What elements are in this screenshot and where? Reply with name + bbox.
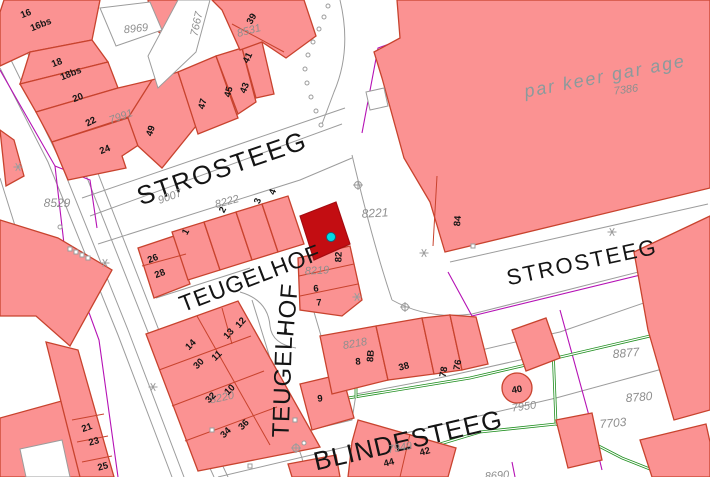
cadastral-map-viewport[interactable]: STROSTEEGSTROSTEEGTEUGELHOFTEUGEL-HOFBLI…	[0, 0, 710, 477]
building-parcel[interactable]	[640, 424, 710, 477]
house-number-label: 78	[438, 366, 451, 378]
street-name-label: STROSTEEG	[504, 234, 660, 290]
parcel-id-label: 8529	[44, 196, 71, 210]
house-number-label: 82	[333, 252, 344, 263]
survey-symbol-dot	[309, 95, 313, 99]
survey-symbol-square	[68, 247, 72, 251]
survey-symbol-square	[471, 244, 475, 248]
street-name-label: HOF	[272, 282, 304, 338]
selected-parcel-marker	[327, 233, 336, 242]
house-number-label: 40	[511, 384, 523, 397]
house-number-label: 7	[316, 297, 322, 308]
house-number-label: 8B	[365, 349, 377, 362]
survey-symbol-dot	[322, 15, 326, 19]
street-name-label: TEUGEL-	[268, 326, 299, 438]
survey-symbol-dot	[311, 40, 315, 44]
boundary-line-purple	[512, 462, 515, 477]
layer-labels: STROSTEEGSTROSTEEGTEUGELHOFTEUGEL-HOFBLI…	[19, 7, 687, 477]
survey-symbol-asterisk	[149, 383, 158, 391]
survey-symbol-dot	[326, 4, 330, 8]
survey-symbol-asterisk	[420, 249, 429, 257]
house-number-label: 9	[317, 393, 323, 404]
house-number-label: 8	[355, 356, 361, 367]
house-number-label: 3	[252, 197, 264, 206]
road-edge-line	[352, 155, 392, 300]
building-parcel[interactable]	[374, 0, 710, 252]
house-number-label: 84	[452, 215, 464, 227]
survey-symbol-dot	[317, 27, 321, 31]
building-parcel[interactable]	[0, 130, 24, 186]
house-number-label: 76	[452, 359, 465, 371]
survey-symbol-circled-plus	[400, 302, 410, 312]
survey-symbol-square	[210, 428, 214, 432]
parcel-id-label: 7950	[511, 399, 538, 414]
cadastral-map[interactable]: STROSTEEGSTROSTEEGTEUGELHOFTEUGEL-HOFBLI…	[0, 0, 710, 477]
survey-symbol-dot	[314, 109, 318, 113]
building-parcel[interactable]	[0, 220, 112, 346]
survey-symbol-dot	[58, 225, 62, 229]
survey-symbol-dot	[302, 441, 306, 445]
house-number-label: 6	[313, 283, 319, 294]
survey-symbol-dot	[306, 53, 310, 57]
survey-symbol-square	[80, 253, 84, 257]
survey-symbol-square	[86, 256, 90, 260]
parcel-id-label: 8219	[304, 264, 329, 277]
survey-symbol-square	[248, 464, 252, 468]
survey-symbol-square	[74, 250, 78, 254]
parcel-id-label: 8221	[361, 205, 388, 220]
boundary-line-purple	[448, 272, 472, 316]
parcel-id-label: 7703	[599, 415, 627, 431]
survey-symbol-circled-plus	[353, 180, 363, 190]
building-parcel[interactable]	[556, 413, 602, 468]
parcel-id-label: 8690	[484, 469, 510, 477]
parcel-id-label: 8969	[123, 22, 149, 36]
survey-symbol-dot	[319, 123, 323, 127]
parcel-id-label: 8780	[625, 389, 653, 405]
parcel-id-label: 8877	[612, 345, 641, 361]
survey-symbol-dot	[303, 67, 307, 71]
survey-symbol-asterisk	[608, 228, 617, 236]
open-parcel-area	[366, 88, 388, 110]
survey-symbol-dot	[305, 81, 309, 85]
